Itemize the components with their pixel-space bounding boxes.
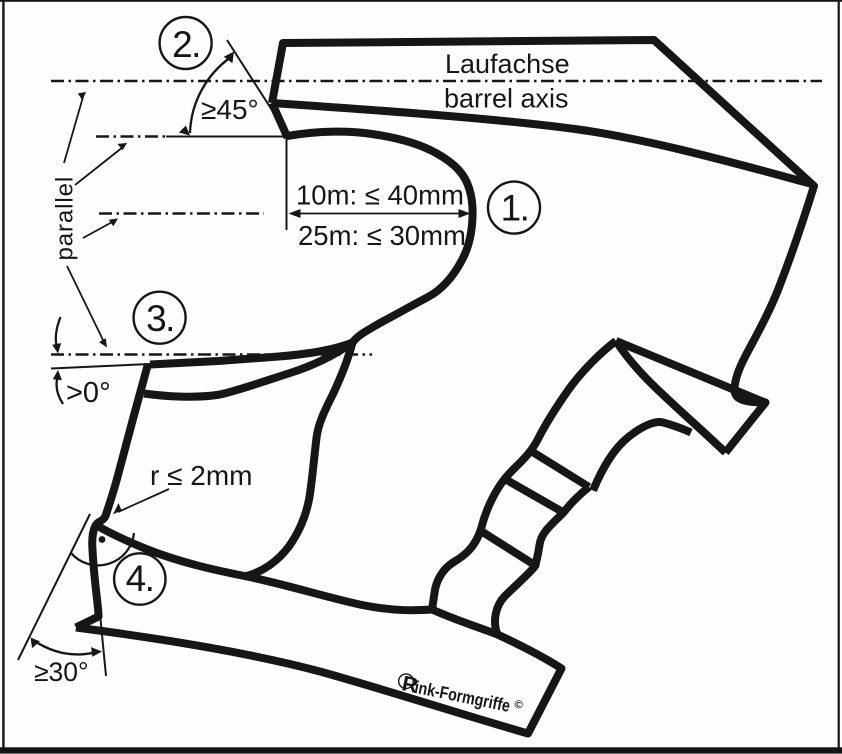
svg-text:≥30°: ≥30° xyxy=(34,657,89,687)
svg-text:Laufachse: Laufachse xyxy=(445,49,570,79)
svg-text:barrel axis: barrel axis xyxy=(444,84,569,114)
svg-text:4.: 4. xyxy=(126,558,154,599)
svg-text:r ≤ 2mm: r ≤ 2mm xyxy=(150,460,252,491)
svg-text:25m: ≤ 30mm: 25m: ≤ 30mm xyxy=(298,220,466,251)
svg-text:3.: 3. xyxy=(146,298,174,339)
svg-text:>0°: >0° xyxy=(66,377,111,409)
svg-text:≥45°: ≥45° xyxy=(201,94,259,125)
svg-text:2.: 2. xyxy=(172,24,200,65)
svg-text:10m: ≤ 40mm: 10m: ≤ 40mm xyxy=(296,180,464,211)
svg-text:1.: 1. xyxy=(501,187,529,228)
svg-text:parallel: parallel xyxy=(52,176,79,261)
